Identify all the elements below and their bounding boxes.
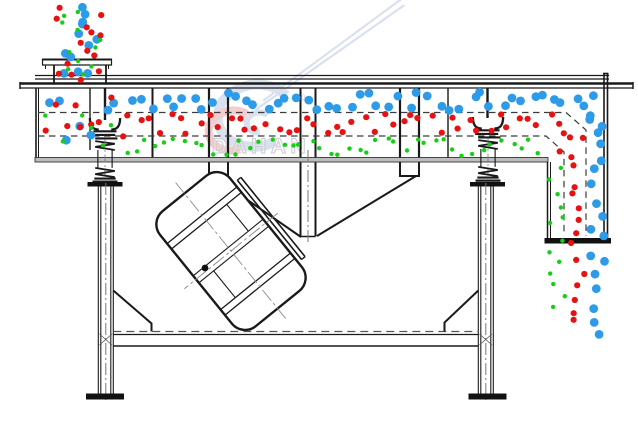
particle-red [108,95,114,101]
particle-green [43,113,47,117]
particle-green [557,260,561,264]
particle-blue [586,252,595,261]
particle-blue [589,91,598,100]
particle-green [358,148,362,152]
particle-red [96,68,102,74]
particle-blue [412,88,421,97]
particle-green [559,205,563,209]
particle-green [109,123,113,127]
particle-red [533,122,539,128]
particle-blue [587,179,596,188]
particle-blue [265,105,274,114]
particle-red [65,61,71,67]
particle-red [54,16,60,22]
particle-green [317,146,321,150]
particle-green [391,139,395,143]
particle-green [347,146,351,150]
particle-red [91,52,97,58]
particle-blue [312,105,321,114]
particle-red [124,112,130,118]
particle-green [547,250,551,254]
top-cover [20,76,633,90]
particle-red [390,122,396,128]
particle-green [89,64,93,68]
particle-green [126,151,130,155]
particle-blue [371,101,380,110]
particle-red [382,111,388,117]
particle-green [135,149,139,153]
diagonal-brace-left [113,291,151,332]
particle-green [75,28,79,32]
cross-beam [113,332,478,347]
particle-blue [579,102,588,111]
particle-red [489,128,495,134]
particle-red [549,111,555,117]
particle-blue [592,284,601,293]
particle-red [498,111,504,117]
particle-blue [348,103,357,112]
particle-red [573,257,579,263]
particle-blue [365,89,374,98]
particle-blue [595,330,604,339]
particle-blue [128,96,137,105]
particle-green [76,59,80,63]
particle-red [68,72,74,78]
particle-green [67,50,71,54]
particle-red [84,24,90,30]
particle-blue [484,102,493,111]
particle-blue [149,105,158,114]
particle-red [57,5,63,11]
particle-green [520,146,524,150]
particle-green [98,38,102,42]
particle-red [262,121,268,127]
particle-blue [475,88,484,97]
particle-green [80,113,84,117]
particle-red [53,102,59,108]
particle-green [373,138,377,142]
particle-red [96,119,102,125]
particle-red [169,111,175,117]
particle-green [194,141,198,145]
particle-red [407,112,413,118]
particle-green [248,146,252,150]
particle-red [517,115,523,121]
particle-blue [407,104,416,113]
particle-blue [516,97,525,106]
particle-blue [280,94,289,103]
particle-red [439,130,445,136]
particle-green [61,139,65,143]
particle-red [139,117,145,123]
hanger-bracket-right [400,162,419,176]
foot-plate-left [86,394,124,400]
particle-red [215,124,221,130]
particle-blue [231,92,240,101]
particle-red [73,102,79,108]
particle-blue [304,96,313,105]
vibrating-screen-diagram: ® DAHAN [0,0,638,428]
particle-red [503,124,509,130]
particle-blue [292,94,301,103]
particle-red [414,115,420,121]
particle-green [233,152,237,156]
particle-red [241,127,247,133]
support-spring-left [90,118,120,182]
particle-red [576,205,582,211]
particle-red [348,119,354,125]
particle-red [286,129,292,135]
particle-green [470,152,474,156]
particle-red [573,230,579,236]
particle-red [229,115,235,121]
particle-red [97,32,103,38]
particle-green [291,143,295,147]
particle-green [199,143,203,147]
vibration-motor [129,145,333,357]
particle-blue [574,94,583,103]
particle-blue [248,100,257,109]
upper-screen-deck [38,113,586,237]
particle-blue [596,139,605,148]
particle-blue [197,105,206,114]
particle-green [488,142,492,146]
particle-blue [600,257,609,266]
particle-red [78,77,84,83]
particle-blue [594,128,603,137]
particle-green [450,147,454,151]
particle-blue [332,104,341,113]
support-leg-left [86,182,124,400]
particle-red [455,126,461,132]
particle-green [256,140,260,144]
particle-blue [191,94,200,103]
particle-green [60,20,64,24]
motor-eyebolt [202,265,209,272]
particle-blue [81,10,90,19]
particle-blue [137,95,146,104]
particle-green [329,152,333,156]
particle-red [277,126,283,132]
particle-blue [104,106,113,115]
particle-red [199,120,205,126]
particle-blue [587,225,596,234]
particle-green [311,139,315,143]
particle-red [237,116,243,122]
particle-red [571,310,577,316]
particle-green [442,137,446,141]
particle-green [101,143,105,147]
particle-blue [538,91,547,100]
particle-green [421,141,425,145]
particle-red [561,130,567,136]
particle-red [304,115,310,121]
particle-green [459,154,463,158]
particle-red [568,154,574,160]
particle-green [296,142,300,146]
particle-green [434,138,438,142]
particle-blue [45,98,54,107]
particle-green [171,137,175,141]
particle-red [401,118,407,124]
particle-red [569,190,575,196]
particle-green [551,282,555,286]
particle-green [560,239,564,243]
particle-red [98,12,104,18]
particle-red [557,148,563,154]
particle-green [526,138,530,142]
particle-green [211,152,215,156]
support-leg-right [469,182,507,400]
diagonal-brace-right [445,291,479,332]
particle-blue [591,270,600,279]
particle-red [567,134,573,140]
particle-blue [423,92,432,101]
particle-red [182,131,188,137]
particle-red [556,121,562,127]
particle-green [499,138,503,142]
particle-red [146,115,152,121]
particle-red [430,113,436,119]
particle-red [207,112,213,118]
particle-red [340,129,346,135]
particle-green [271,137,275,141]
particle-red [120,133,126,139]
particle-blue [324,102,333,111]
particle-blue [590,164,599,173]
diagram-canvas: ® DAHAN [0,0,638,428]
particle-blue [597,156,606,165]
particle-blue [501,101,510,110]
particle-blue [445,106,454,115]
particle-green [335,153,339,157]
particle-green [416,137,420,141]
particle-red [251,125,257,131]
particle-green [551,305,555,309]
particle-green [555,192,559,196]
particle-red [178,115,184,121]
particle-blue [454,105,463,114]
particle-green [513,142,517,146]
particle-blue [177,94,186,103]
particle-green [89,126,93,130]
particle-green [482,148,486,152]
particle-blue [589,304,598,313]
particle-red [372,129,378,135]
particle-green [536,151,540,155]
particle-green [183,139,187,143]
particle-red [580,135,586,141]
foot-plate-right [469,394,507,400]
particle-red [525,116,531,122]
particle-blue [599,232,608,241]
particle-blue [394,92,403,101]
particle-green [162,140,166,144]
particle-blue [384,103,393,112]
particle-red [56,71,62,77]
particle-dots [43,3,609,339]
particle-blue [356,90,365,99]
particle-red [88,29,94,35]
particle-red [64,123,70,129]
particle-red [449,115,455,121]
particle-red [43,128,49,134]
particle-blue [208,98,217,107]
particle-red [581,271,587,277]
particle-green [548,221,552,225]
particle-red [570,162,576,168]
particle-red [572,297,578,303]
particle-green [62,14,66,18]
particle-green [236,139,240,143]
particle-red [84,48,90,54]
particle-red [576,217,582,223]
particle-green [153,144,157,148]
particle-green [81,72,85,76]
particle-red [294,127,300,133]
particle-red [574,282,580,288]
particle-red [572,184,578,190]
particle-green [405,148,409,152]
particle-green [387,136,391,140]
particle-red [363,114,369,120]
particle-blue [592,199,601,208]
particle-blue [508,94,517,103]
particle-green [66,67,70,71]
particle-green [561,215,565,219]
particle-blue [585,115,594,124]
particle-green [142,138,146,142]
particle-blue [169,102,178,111]
particle-red [77,124,83,130]
particle-blue [590,318,599,327]
screen-decks [38,113,586,237]
particle-green [547,177,551,181]
particle-blue [163,94,172,103]
particle-red [571,317,577,323]
particle-green [283,143,287,147]
particle-green [364,150,368,154]
particle-red [310,121,316,127]
particle-green [76,10,80,14]
particle-red [473,128,479,134]
particle-blue [556,98,565,107]
particle-green [224,153,228,157]
particle-blue [87,131,96,140]
particle-blue [598,212,607,221]
particle-green [93,45,97,49]
particle-red [78,40,84,46]
particle-red [334,124,340,130]
particle-red [325,130,331,136]
particle-green [548,271,552,275]
support-spring-right [473,117,503,181]
particle-green [559,166,563,170]
particle-red [468,117,474,123]
particle-red [568,240,574,246]
particle-green [563,294,567,298]
particle-red [157,130,163,136]
